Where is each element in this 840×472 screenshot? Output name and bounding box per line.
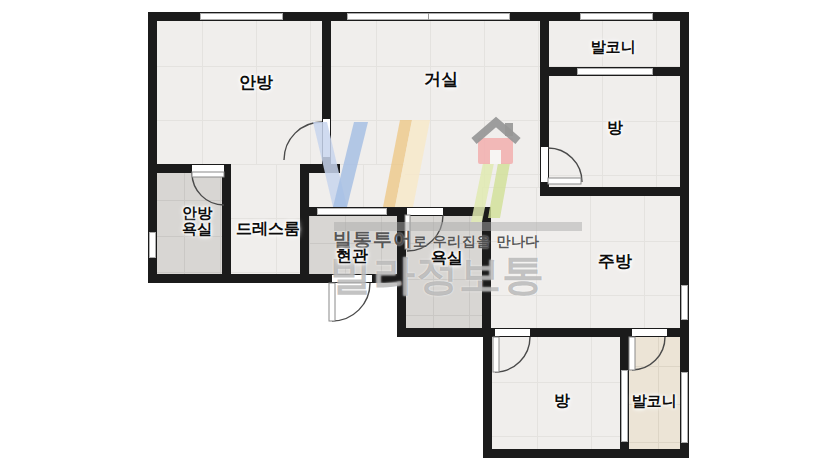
room-label-bang-top: 방 (607, 118, 623, 139)
room-label-anbang-yoksil: 안방욕실 (182, 205, 212, 237)
door-leaf (548, 178, 581, 184)
door-arc (632, 337, 665, 370)
room-label-balcony-bottom: 발코니 (632, 392, 677, 411)
room-label-jubang: 주방 (598, 250, 632, 273)
room-label-bang-bottom: 방 (554, 391, 570, 412)
room-label-yoksil: 욕실 (431, 248, 463, 269)
room-label-hyeongwan: 현관 (336, 246, 368, 267)
logo-v-right-stroke (333, 122, 368, 207)
room-label-dressroom: 드레스룸 (236, 219, 300, 240)
room-label-anbang-yoksil-line2: 욕실 (182, 220, 212, 238)
room-label-balcony-top: 발코니 (591, 38, 636, 57)
house-door-icon (490, 150, 501, 164)
door-leaf (192, 172, 224, 177)
door-leaf (493, 337, 499, 372)
door-arc (192, 173, 224, 205)
room-label-anbang: 안방 (239, 71, 273, 94)
door-leaf (629, 337, 635, 370)
floorplan-image: 빌통투어로 우리집을 만나다 빌라정보통 안방 거실 발코니 방 안방욕실 드레… (0, 0, 840, 472)
door-arc (495, 337, 530, 372)
door-arc (548, 148, 582, 182)
room-label-geosil: 거실 (424, 68, 458, 91)
